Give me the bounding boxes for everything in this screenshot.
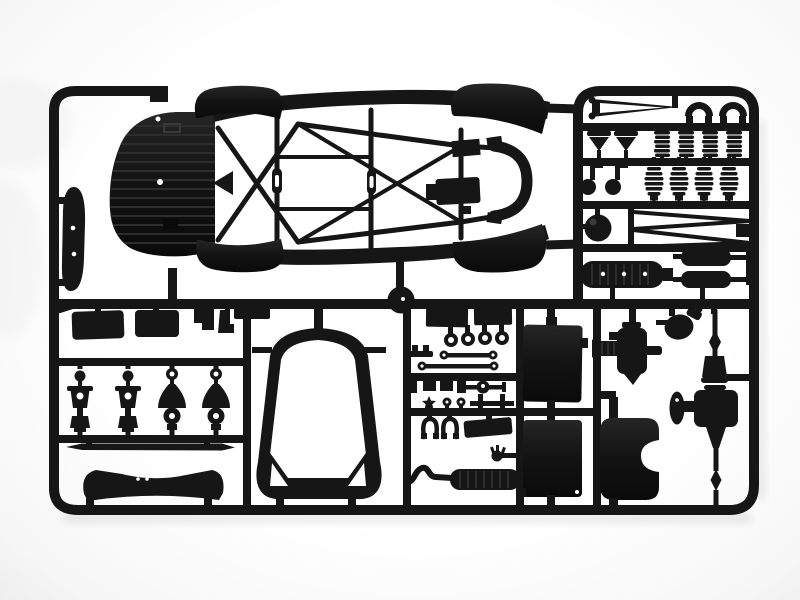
part-dashboard-cowl xyxy=(83,470,223,508)
part-clips-and-box xyxy=(421,412,520,462)
part-control-arms xyxy=(633,212,751,247)
section-bottom-left xyxy=(55,299,270,508)
part-wishbone xyxy=(589,92,679,120)
part-ball-joint xyxy=(578,205,612,242)
section-radiators xyxy=(516,304,588,509)
part-windscreen-frame xyxy=(252,304,386,507)
section-center-small-parts xyxy=(407,300,520,490)
section-right-column xyxy=(592,302,754,509)
part-bushing-rings xyxy=(444,324,509,347)
photo-canvas xyxy=(0,0,800,600)
part-tie-rods xyxy=(407,345,499,371)
part-ball-arm-links xyxy=(580,163,628,195)
part-exhaust-pipe xyxy=(407,468,520,490)
part-hood-panel xyxy=(106,112,218,256)
part-chassis-frame xyxy=(106,84,578,307)
part-mufflers xyxy=(576,249,752,302)
sprue-gate-disc xyxy=(388,287,415,314)
part-shock-absorbers xyxy=(67,362,141,440)
sprue-photo xyxy=(0,0,800,600)
part-oil-tank xyxy=(600,397,659,509)
part-differential xyxy=(592,302,662,385)
part-suspension-uprights xyxy=(158,362,230,440)
